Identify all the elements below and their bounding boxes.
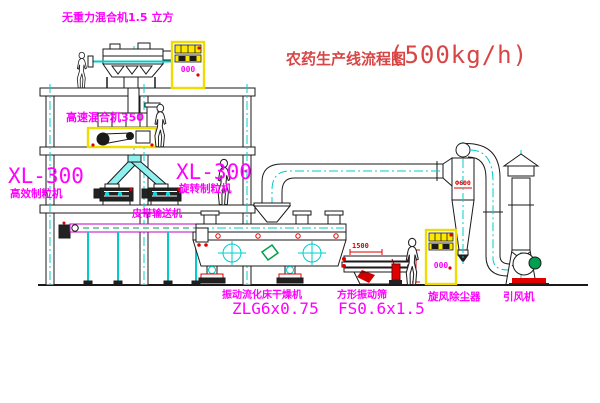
label-fan: 引风机 — [503, 292, 535, 303]
high-speed-mixer — [88, 103, 160, 147]
induced-draft-fan — [509, 253, 549, 285]
dimension-screen-length: 1500 — [352, 243, 369, 250]
belt-conveyor — [59, 222, 208, 285]
dryer-feed-duct — [254, 161, 452, 222]
dimension-cyclone-diameter: Ф600 — [452, 180, 474, 187]
y-chute — [105, 155, 168, 188]
control-cabinet-ground — [426, 230, 456, 284]
label-high-speed-mixer: 高速混合机350 — [66, 112, 144, 123]
label-screen-model: FS0.6x1.5 — [338, 301, 425, 317]
label-granulator-right-name: 旋转制粒机 — [179, 184, 232, 195]
cabinet-ground-display: 000 — [428, 262, 454, 270]
label-granulator-right-model: XL-300 — [176, 162, 252, 183]
label-dryer-model: ZLG6x0.75 — [232, 301, 319, 317]
granulator-left — [94, 188, 133, 205]
diagram-title: 农药生产线流程图 — [286, 52, 406, 67]
cabinet-top-display: 000 — [176, 66, 200, 74]
label-granulator-left-model: XL-300 — [8, 166, 84, 187]
label-gravity-mixer: 无重力混合机1.5 立方 — [62, 12, 173, 23]
label-granulator-left-name: 高效制粒机 — [10, 189, 63, 200]
worker-figure-top — [77, 52, 86, 88]
diagram-canvas: 农药生产线流程图 (500kg/h) 无重力混合机1.5 立方 高速混合机350… — [0, 0, 600, 403]
diagram-capacity: (500kg/h) — [389, 43, 528, 67]
label-cyclone: 旋风除尘器 — [428, 292, 481, 303]
label-belt-conveyor: 皮带输送机 — [132, 210, 182, 220]
